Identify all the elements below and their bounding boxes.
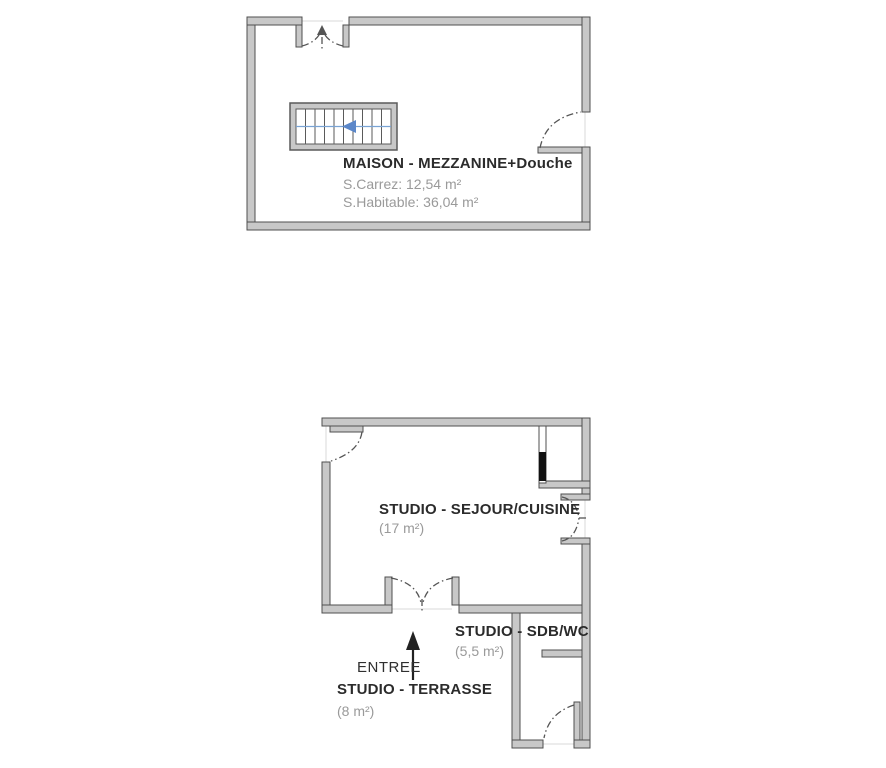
maison-carrez-area: S.Carrez: 12,54 m²	[343, 177, 461, 192]
entree-label: ENTREE	[357, 660, 421, 677]
sejour-area: (17 m²)	[379, 521, 424, 536]
terrasse-title: STUDIO - TERRASSE	[337, 682, 492, 699]
sdb-title: STUDIO - SDB/WC	[455, 624, 589, 641]
sdb-area: (5,5 m²)	[455, 644, 504, 659]
maison-title: MAISON - MEZZANINE+Douche	[343, 156, 573, 173]
terrasse-area: (8 m²)	[337, 704, 374, 719]
maison-habitable-area: S.Habitable: 36,04 m²	[343, 195, 478, 210]
floorplan-page: MAISON - MEZZANINE+Douche S.Carrez: 12,5…	[0, 0, 886, 768]
labels-layer: MAISON - MEZZANINE+Douche S.Carrez: 12,5…	[0, 0, 886, 768]
sejour-title: STUDIO - SEJOUR/CUISINE	[379, 502, 580, 519]
